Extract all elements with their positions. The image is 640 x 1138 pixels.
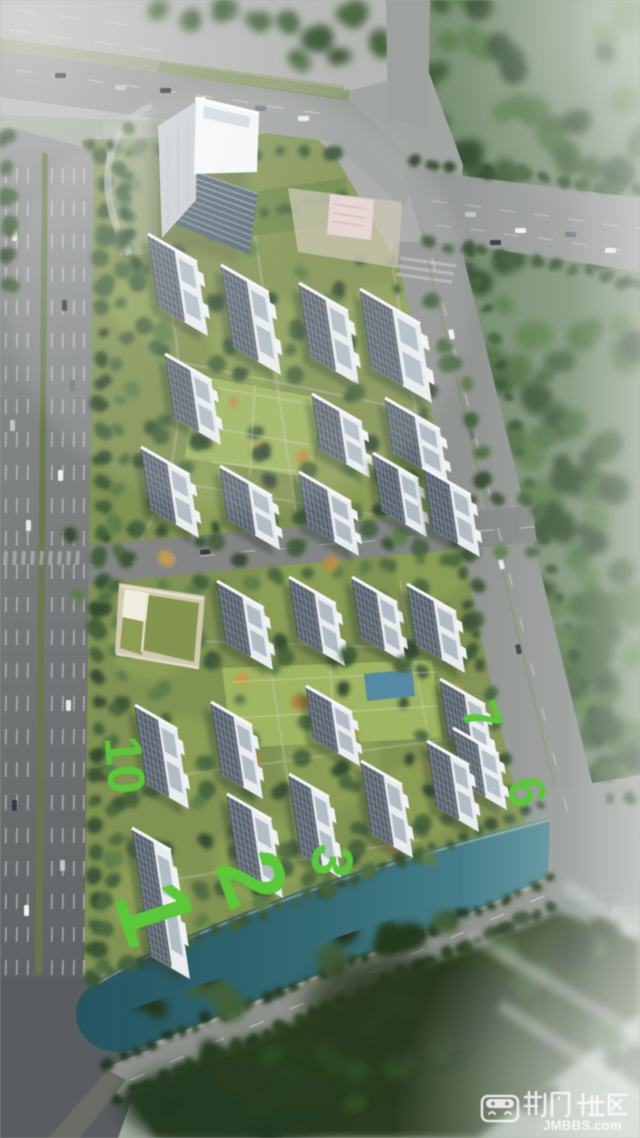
svg-text:JMBBS.com: JMBBS.com [543, 1118, 622, 1133]
svg-text:10: 10 [93, 734, 156, 797]
